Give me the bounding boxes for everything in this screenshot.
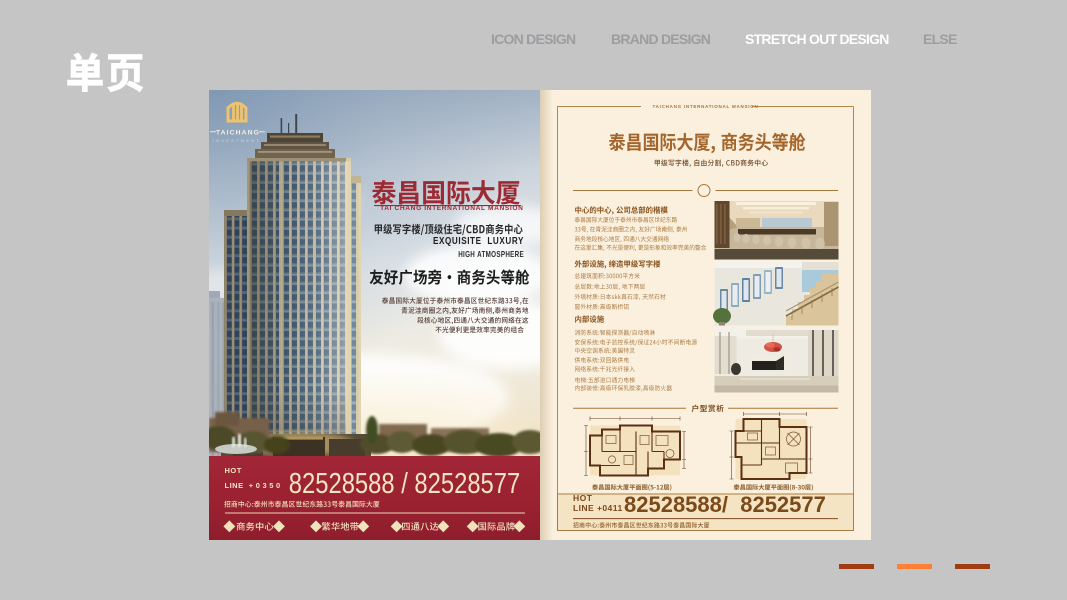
- svg-text:TAICHANG: TAICHANG: [216, 130, 260, 137]
- svg-text:INVESTMENT: INVESTMENT: [213, 139, 261, 143]
